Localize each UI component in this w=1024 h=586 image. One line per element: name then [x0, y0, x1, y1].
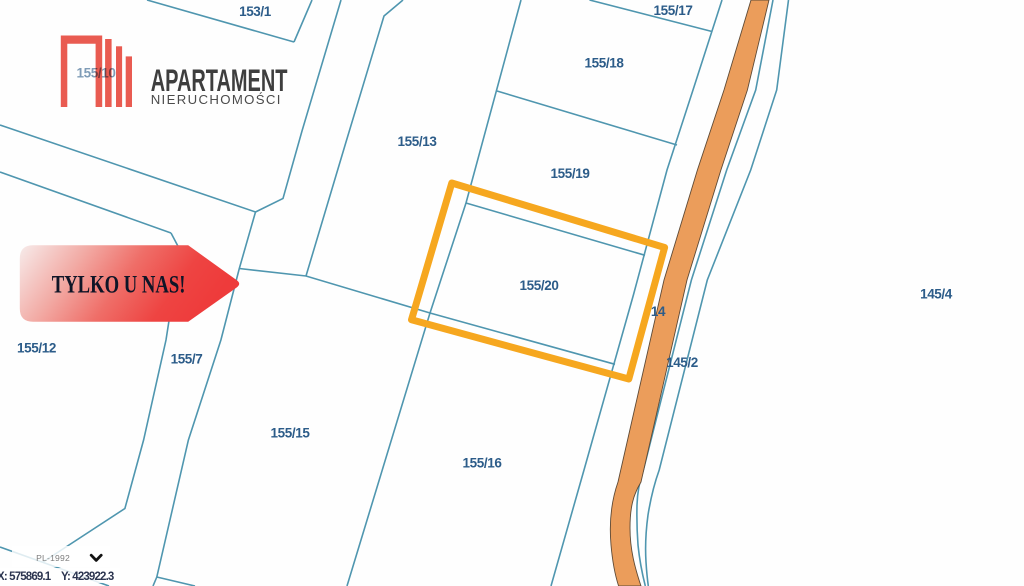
svg-text:X: 575869.1: X: 575869.1 [0, 571, 52, 583]
svg-text:153/1: 153/1 [239, 4, 272, 19]
svg-text:155/15: 155/15 [271, 426, 311, 441]
svg-text:14: 14 [651, 304, 666, 319]
svg-text:155/16: 155/16 [463, 456, 503, 471]
svg-text:155/19: 155/19 [551, 166, 590, 181]
svg-text:155/10: 155/10 [77, 66, 116, 81]
svg-text:TYLKO U NAS!: TYLKO U NAS! [52, 270, 186, 299]
svg-text:Y: 423922.3: Y: 423922.3 [61, 571, 114, 583]
svg-text:155/20: 155/20 [520, 278, 559, 293]
svg-text:145/2: 145/2 [666, 355, 698, 370]
svg-text:NIERUCHOMOŚCI: NIERUCHOMOŚCI [151, 92, 282, 107]
svg-text:145/4: 145/4 [920, 287, 953, 302]
svg-text:PL-1992: PL-1992 [36, 553, 70, 563]
svg-text:155/17: 155/17 [654, 3, 693, 18]
svg-text:155/18: 155/18 [585, 56, 625, 71]
svg-text:155/7: 155/7 [171, 352, 203, 367]
svg-text:155/13: 155/13 [398, 134, 438, 149]
svg-text:155/12: 155/12 [17, 341, 56, 356]
